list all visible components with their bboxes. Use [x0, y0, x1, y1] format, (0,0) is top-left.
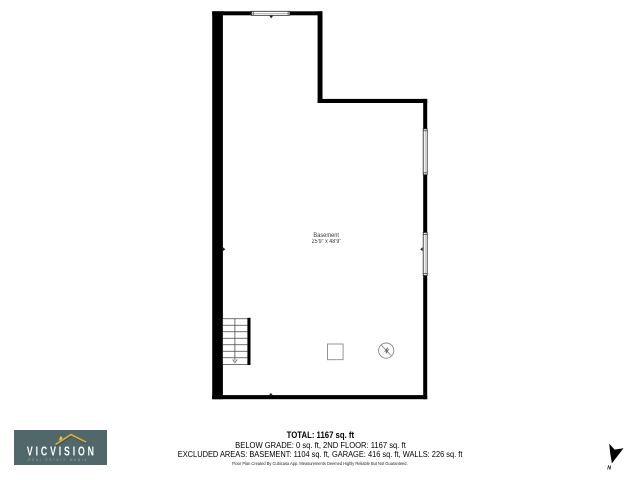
svg-text:N: N: [607, 466, 611, 472]
